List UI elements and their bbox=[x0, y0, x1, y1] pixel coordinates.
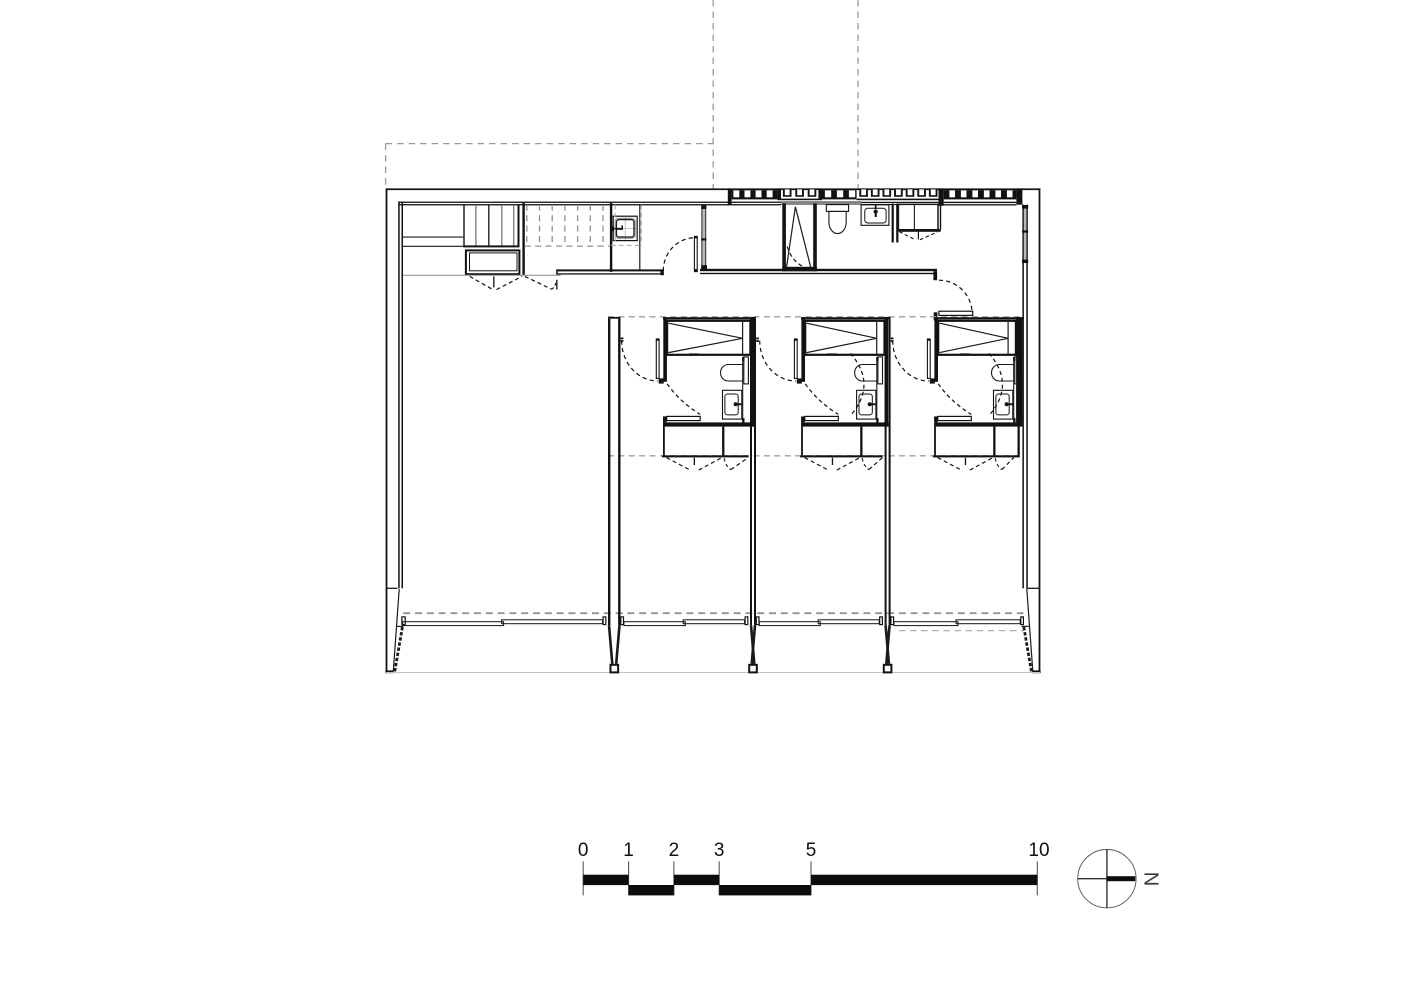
svg-text:5: 5 bbox=[806, 840, 817, 861]
svg-text:2: 2 bbox=[669, 840, 680, 861]
svg-text:0: 0 bbox=[578, 840, 589, 861]
svg-text:1: 1 bbox=[623, 840, 634, 861]
svg-text:10: 10 bbox=[1028, 840, 1049, 861]
svg-text:3: 3 bbox=[714, 840, 725, 861]
svg-text:N: N bbox=[1140, 872, 1162, 886]
